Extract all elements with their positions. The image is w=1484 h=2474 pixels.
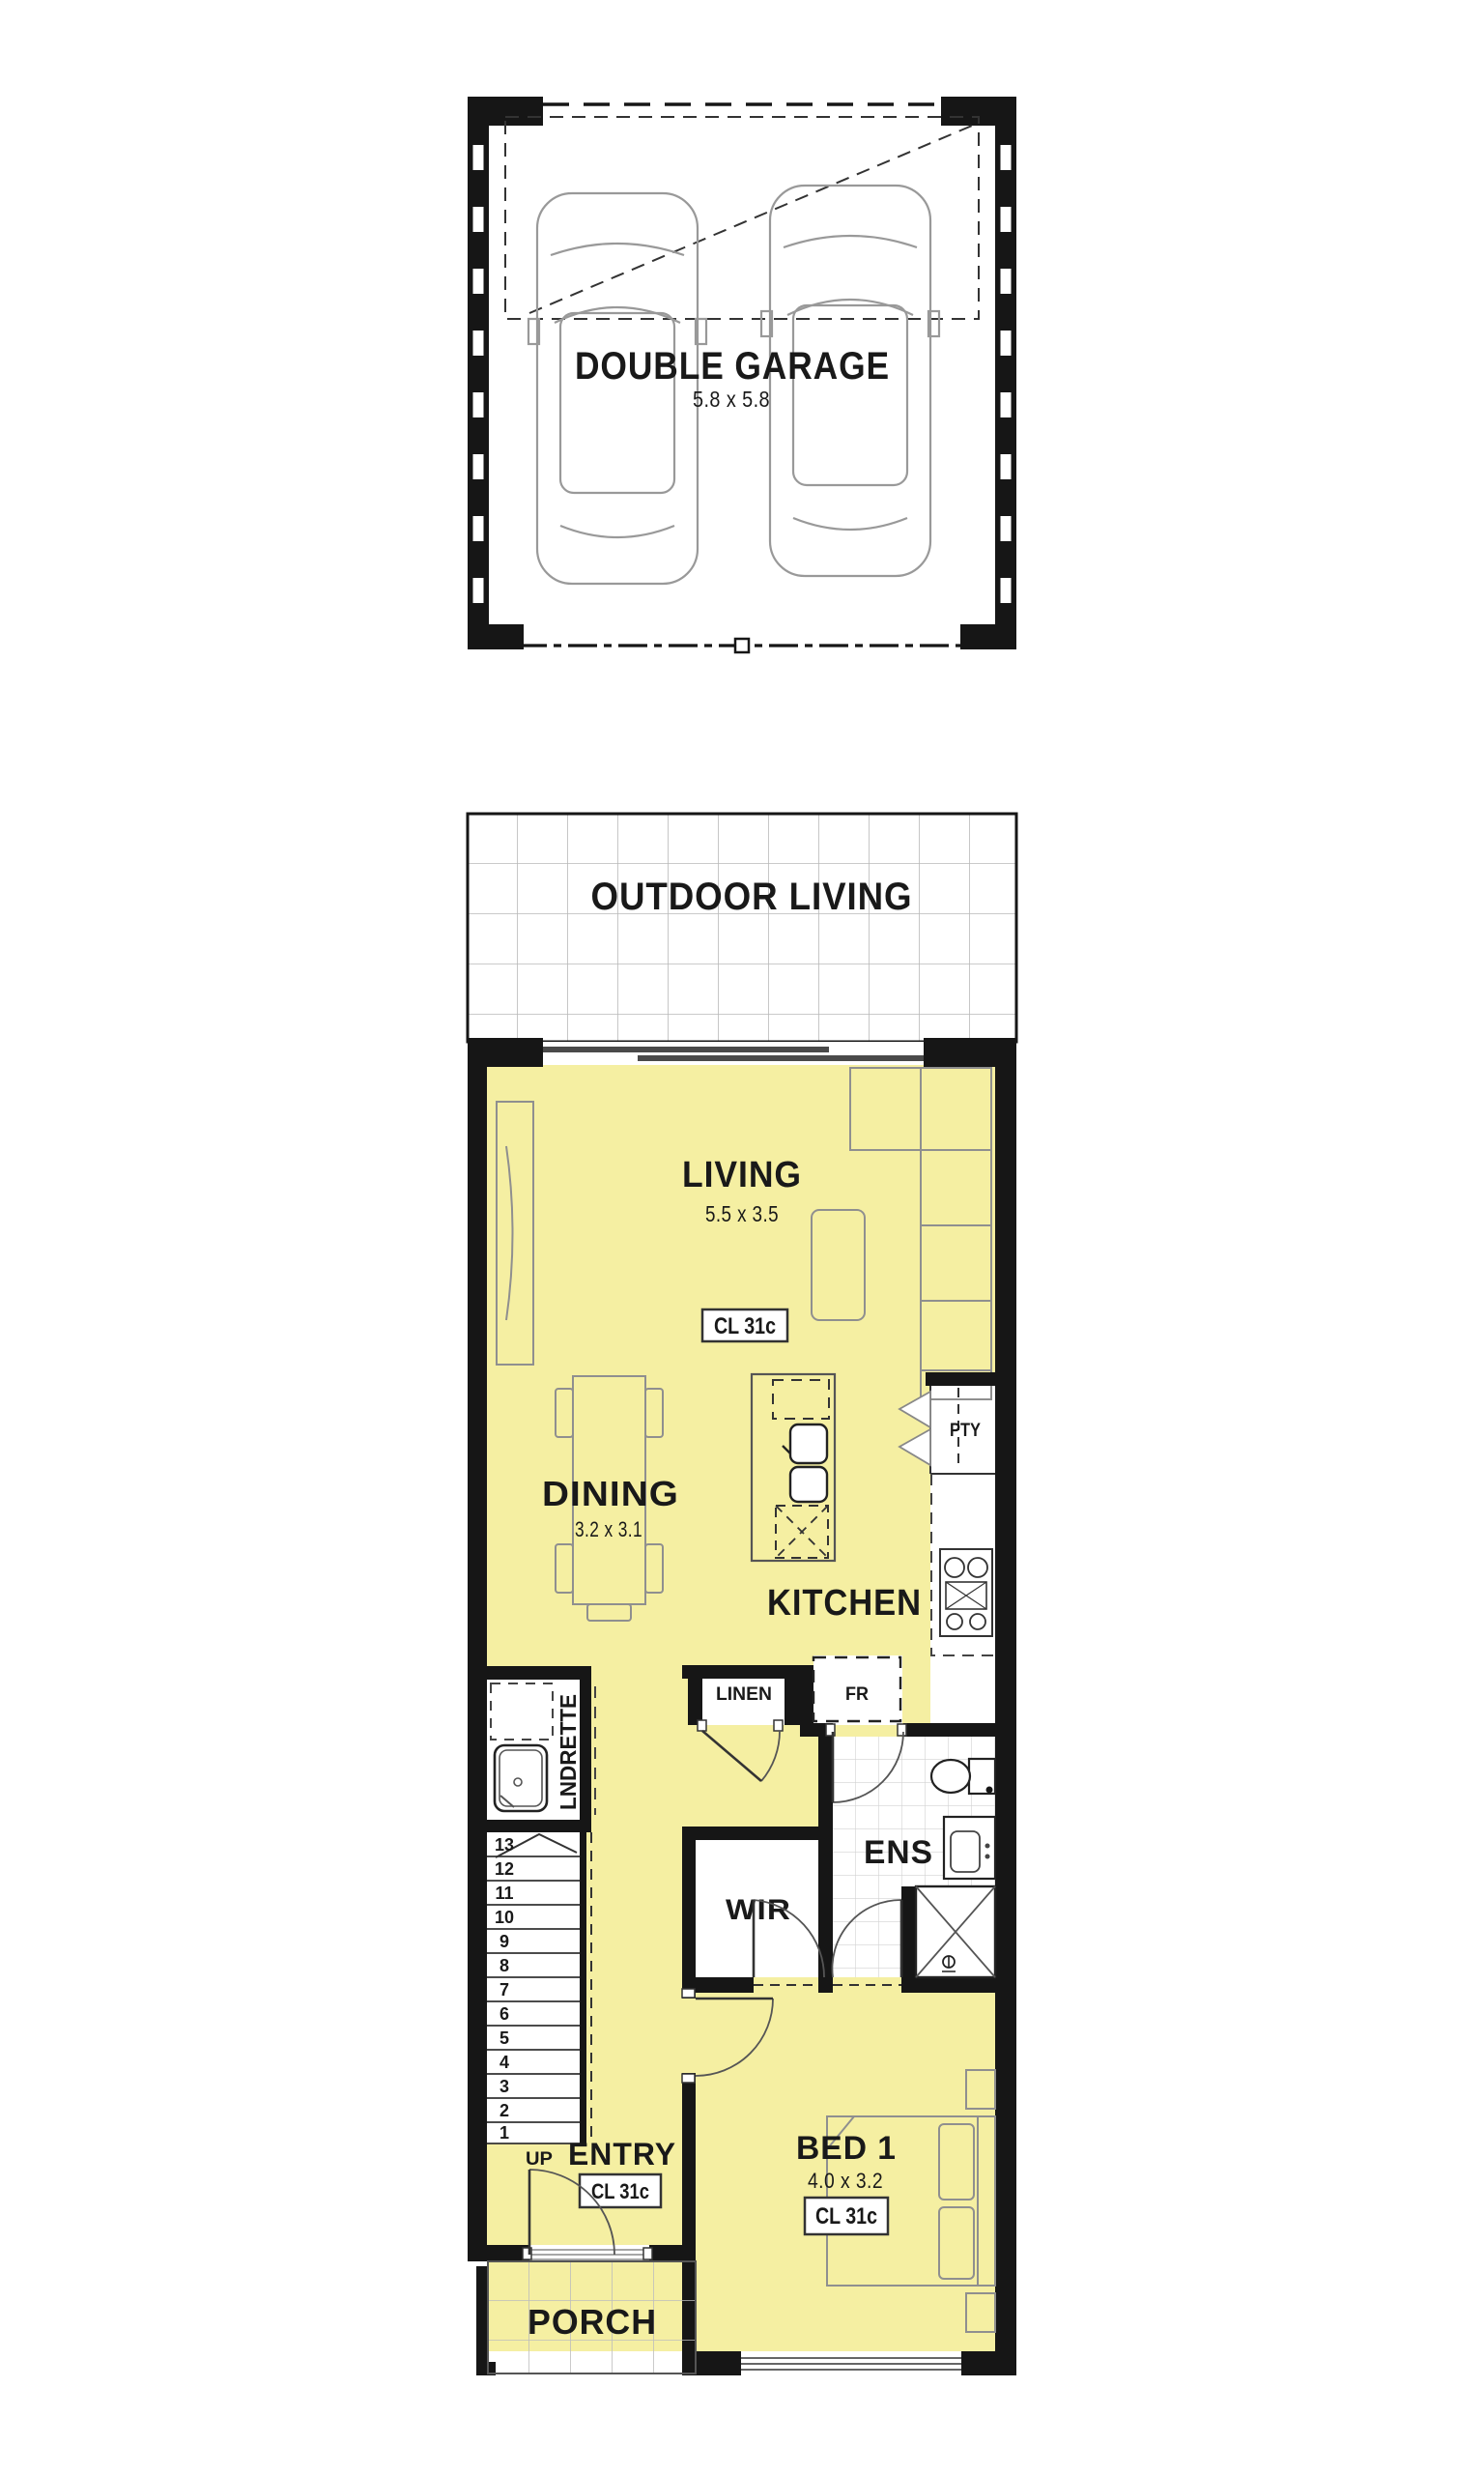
svg-text:5: 5 [499, 2028, 509, 2048]
sliding-door [543, 1042, 924, 1065]
toilet-icon [931, 1759, 995, 1794]
laundry-label: LNDRETTE [556, 1694, 581, 1810]
car-icon [528, 193, 706, 584]
entry-ceiling-tag: CL 31c [580, 2174, 661, 2207]
svg-text:8: 8 [499, 1956, 509, 1975]
entry-label: ENTRY [568, 2137, 676, 2172]
outdoor-living-label: OUTDOOR LIVING [591, 876, 913, 918]
wir-label: WIR [726, 1894, 791, 1926]
svg-text:2: 2 [499, 2101, 509, 2120]
svg-text:11: 11 [495, 1884, 513, 1903]
fridge-label: FR [845, 1684, 869, 1705]
linen-label: LINEN [716, 1684, 772, 1705]
porch-label: PORCH [528, 2302, 657, 2342]
floorplan-page: DOUBLE GARAGE 5.8 x 5.8 OUTDOOR LIVING [0, 0, 1484, 2474]
svg-text:1: 1 [499, 2123, 509, 2143]
bed1-ceiling-tag: CL 31c [805, 2198, 888, 2234]
front-door-threshold [529, 2245, 649, 2261]
bed1-window [741, 2351, 961, 2375]
svg-text:6: 6 [499, 2004, 509, 2024]
laundry-tub-icon [495, 1745, 547, 1811]
porch: PORCH [488, 2261, 696, 2373]
svg-text:7: 7 [499, 1980, 509, 1999]
garage-dims: 5.8 x 5.8 [693, 387, 770, 412]
bed1-label: BED 1 [796, 2130, 897, 2167]
garage-label: DOUBLE GARAGE [575, 345, 890, 388]
garage: DOUBLE GARAGE 5.8 x 5.8 [468, 97, 1016, 652]
floorplan-drawing: DOUBLE GARAGE 5.8 x 5.8 OUTDOOR LIVING [0, 0, 1484, 2474]
garage-recess [505, 117, 979, 319]
stove-icon [940, 1549, 992, 1636]
dining-dims: 3.2 x 3.1 [575, 1517, 642, 1541]
svg-text:CL 31c: CL 31c [714, 1313, 776, 1339]
svg-text:CL 31c: CL 31c [815, 2203, 877, 2229]
svg-text:9: 9 [499, 1932, 509, 1951]
svg-text:4: 4 [499, 2053, 509, 2072]
svg-text:10: 10 [495, 1908, 514, 1927]
svg-text:12: 12 [495, 1859, 514, 1879]
svg-text:CL 31c: CL 31c [591, 2179, 649, 2203]
living-label: LIVING [682, 1155, 802, 1195]
pantry-label: PTY [950, 1421, 981, 1441]
living-ceiling-tag: CL 31c [702, 1309, 787, 1341]
svg-text:3: 3 [499, 2077, 509, 2096]
outdoor-living: OUTDOOR LIVING [468, 814, 1016, 1042]
living-dims: 5.5 x 3.5 [705, 1201, 779, 1226]
ensuite-label: ENS [864, 1834, 933, 1871]
shower-icon [916, 1886, 995, 1977]
kitchen-label: KITCHEN [767, 1583, 922, 1624]
vanity-icon [944, 1817, 995, 1879]
bed1-dims: 4.0 x 3.2 [808, 2169, 883, 2193]
stairs-up-label: UP [526, 2149, 553, 2170]
dining-label: DINING [542, 1474, 679, 1513]
svg-text:13: 13 [495, 1835, 514, 1855]
